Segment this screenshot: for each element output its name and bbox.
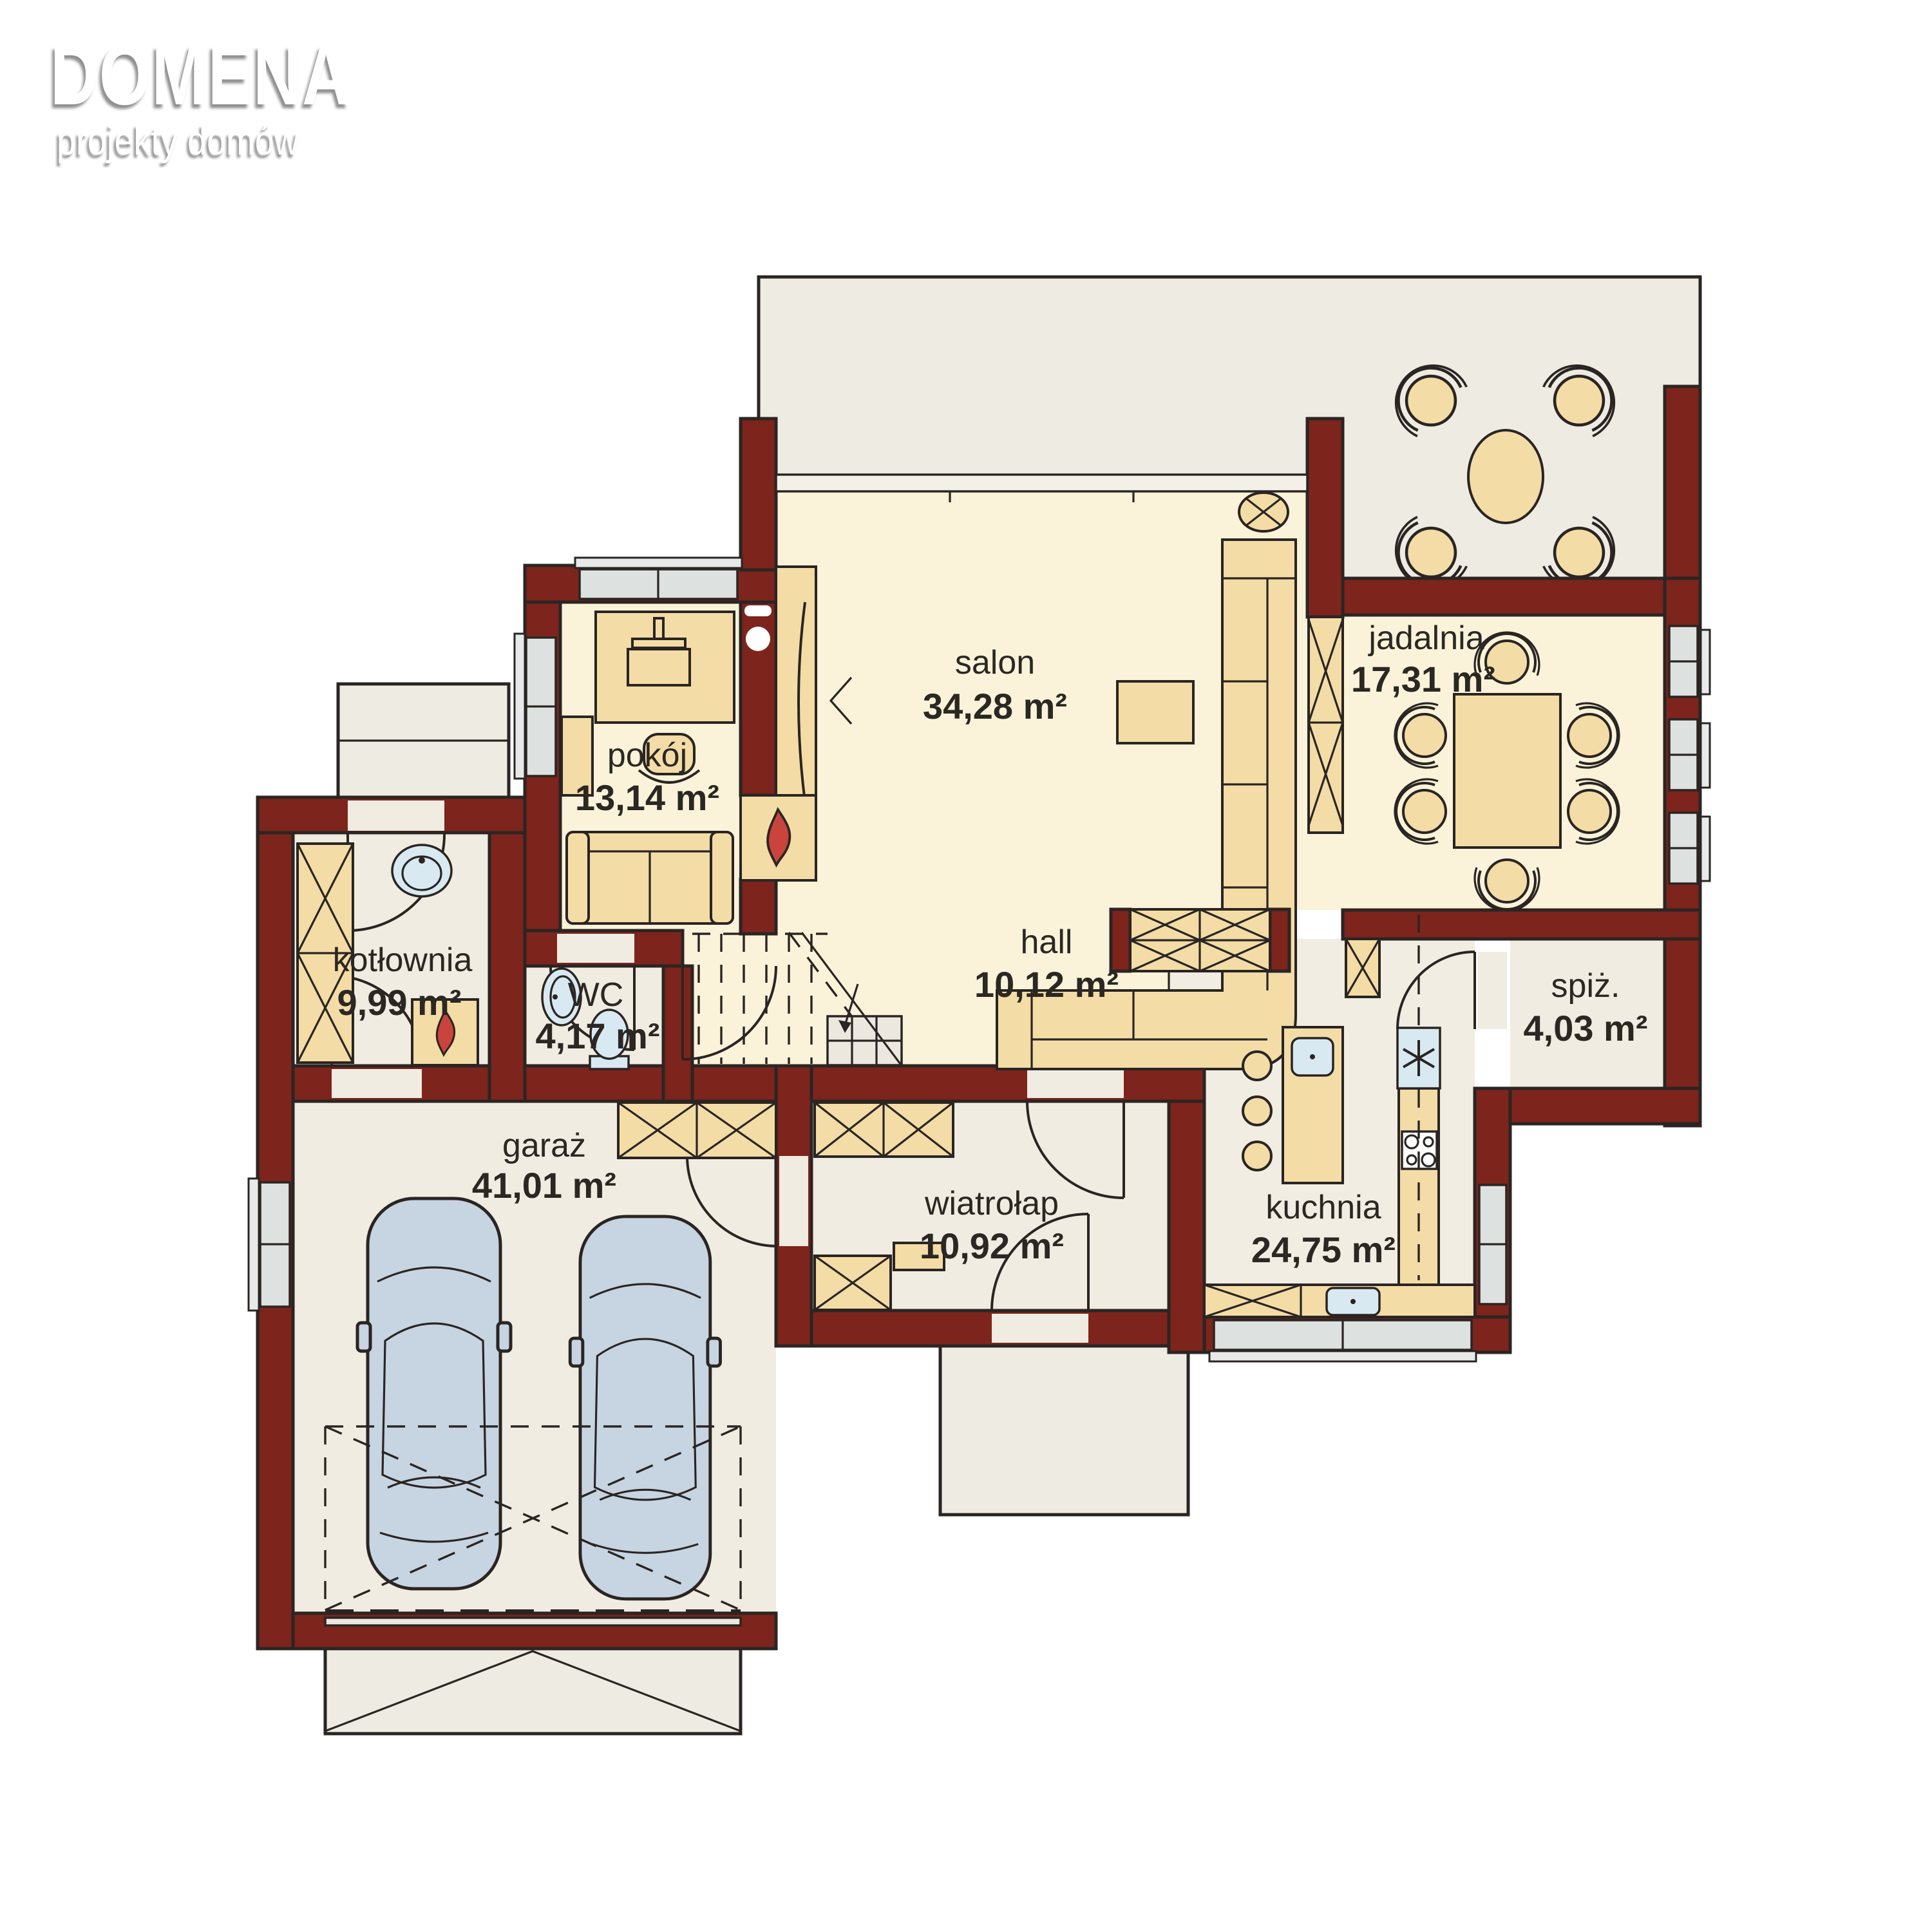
fireplace-icon bbox=[741, 795, 816, 880]
area-hall: 10,12 m² bbox=[974, 964, 1119, 1005]
label-garaz: garaż bbox=[502, 1127, 586, 1164]
floor-plan-drawing: pokój 13,14 m² salon 34,28 m² jadalnia 1… bbox=[0, 0, 1932, 1932]
label-kotlownia: kotłownia bbox=[333, 942, 473, 979]
area-spiz: 4,03 m² bbox=[1524, 1008, 1648, 1048]
window-pokoj-top bbox=[575, 558, 742, 599]
wardrobe-bottom bbox=[815, 1256, 891, 1310]
entry-porch bbox=[940, 1346, 1188, 1515]
windows-jadalnia-right bbox=[1669, 626, 1710, 884]
fridge-icon bbox=[1397, 1028, 1440, 1088]
stool bbox=[1243, 1052, 1271, 1080]
stool bbox=[1243, 1142, 1271, 1170]
area-kotlownia: 9,99 m² bbox=[337, 982, 462, 1023]
tall-wardrobe bbox=[1309, 617, 1343, 833]
radiator-icon bbox=[744, 605, 772, 616]
window-pokoj-left bbox=[515, 634, 556, 779]
stool bbox=[1243, 1097, 1271, 1125]
driveway-apron bbox=[325, 1649, 741, 1734]
label-salon: salon bbox=[955, 644, 1035, 681]
label-pokoj: pokój bbox=[607, 737, 687, 774]
kitchen-island bbox=[1283, 1027, 1343, 1183]
side-entry-steps bbox=[338, 684, 509, 797]
tall-cabinet-spiz-side bbox=[1346, 939, 1379, 997]
hall-kitchen-cabinet bbox=[1111, 909, 1289, 971]
wardrobe-top bbox=[815, 1103, 953, 1157]
window-garaz-left bbox=[249, 1179, 290, 1311]
area-salon: 34,28 m² bbox=[923, 686, 1067, 726]
lamp-icon bbox=[1239, 493, 1288, 531]
area-kuchnia: 24,75 m² bbox=[1251, 1229, 1396, 1270]
label-kuchnia: kuchnia bbox=[1265, 1189, 1381, 1226]
label-spiz: spiż. bbox=[1551, 967, 1620, 1005]
car-icon bbox=[570, 1217, 720, 1599]
label-hall: hall bbox=[1021, 923, 1073, 961]
car-icon bbox=[357, 1198, 511, 1589]
area-wiatrolap: 10,92 m² bbox=[920, 1226, 1064, 1266]
area-garaz: 41,01 m² bbox=[472, 1165, 616, 1206]
window-kuchnia-right bbox=[1479, 1185, 1506, 1304]
floor-plan-page: DOMENA projekty domów bbox=[0, 0, 1932, 1932]
window-kuchnia-bottom bbox=[1209, 1320, 1476, 1361]
area-pokoj: 13,14 m² bbox=[575, 777, 719, 818]
area-jadalnia: 17,31 m² bbox=[1351, 659, 1495, 699]
label-jadalnia: jadalnia bbox=[1367, 620, 1484, 657]
sofa-pokoj bbox=[567, 832, 733, 923]
garage-cabinet bbox=[618, 1103, 776, 1158]
area-wc: 4,17 m² bbox=[536, 1016, 660, 1056]
label-wiatrolap: wiatrołap bbox=[924, 1185, 1059, 1222]
vent-icon bbox=[746, 627, 770, 651]
counter-bottom bbox=[1204, 1285, 1475, 1317]
coffee-table bbox=[1117, 681, 1193, 743]
garage-door bbox=[325, 1618, 741, 1625]
utility-sink-icon bbox=[392, 845, 451, 896]
dining-table bbox=[1454, 694, 1560, 848]
label-wc: WC bbox=[568, 976, 624, 1014]
